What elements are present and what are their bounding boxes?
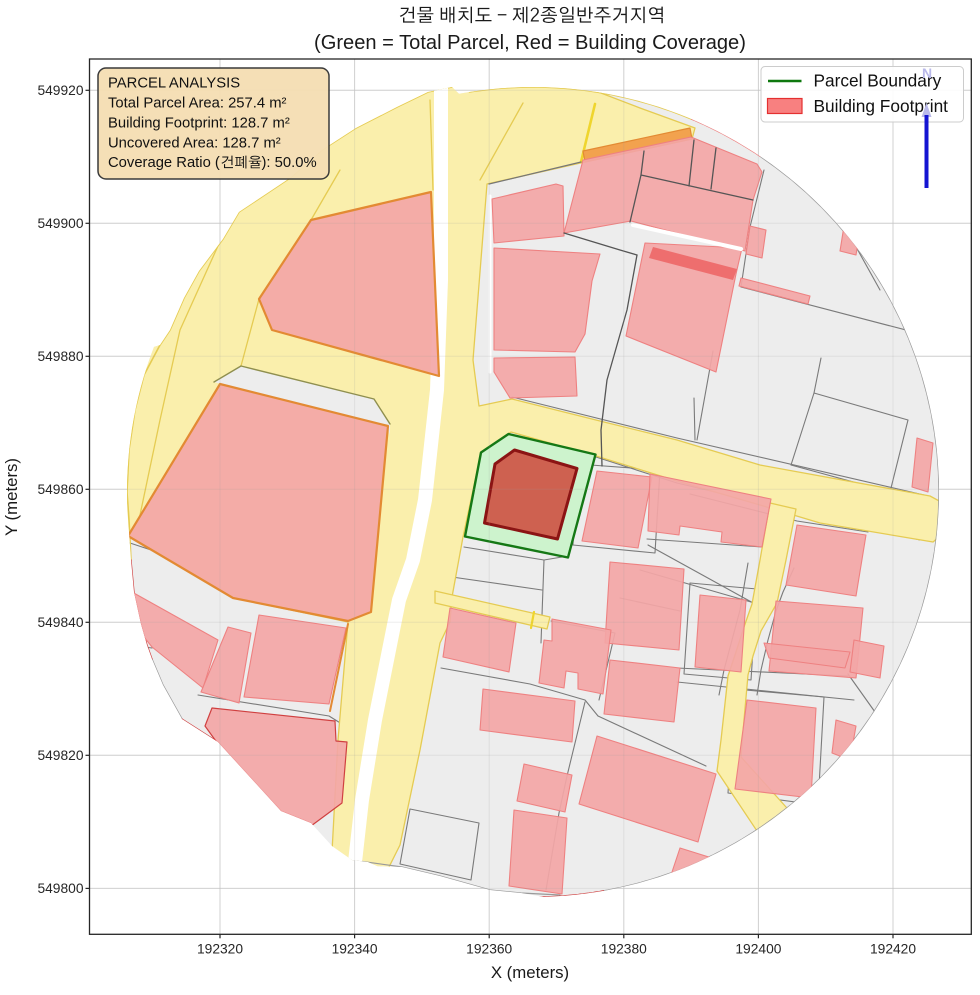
svg-text:(Green = Total Parcel, Red = B: (Green = Total Parcel, Red = Building Co… [314,32,746,54]
svg-text:Y (meters): Y (meters) [2,458,21,536]
svg-text:192400: 192400 [735,941,781,956]
svg-text:549860: 549860 [37,482,83,497]
svg-text:Building Footprint: 128.7 m²: Building Footprint: 128.7 m² [108,115,290,131]
svg-text:PARCEL ANALYSIS: PARCEL ANALYSIS [108,75,240,91]
svg-text:549920: 549920 [37,83,83,98]
svg-text:192340: 192340 [332,941,378,956]
svg-text:192320: 192320 [197,941,243,956]
svg-text:549840: 549840 [37,615,83,630]
svg-text:192360: 192360 [466,941,512,956]
svg-text:549880: 549880 [37,349,83,364]
svg-text:192420: 192420 [870,941,916,956]
svg-text:549900: 549900 [37,216,83,231]
svg-text:Total Parcel Area: 257.4 m²: Total Parcel Area: 257.4 m² [108,95,287,111]
svg-text:549820: 549820 [37,748,83,763]
svg-text:X (meters): X (meters) [491,963,569,982]
svg-text:549800: 549800 [37,881,83,896]
svg-text:Uncovered Area: 128.7 m²: Uncovered Area: 128.7 m² [108,135,281,151]
svg-text:N: N [922,65,932,81]
svg-text:192380: 192380 [601,941,647,956]
svg-text:Coverage Ratio (: Coverage Ratio ( [108,155,220,171]
svg-text:): 50.0%: ): 50.0% [262,155,317,171]
